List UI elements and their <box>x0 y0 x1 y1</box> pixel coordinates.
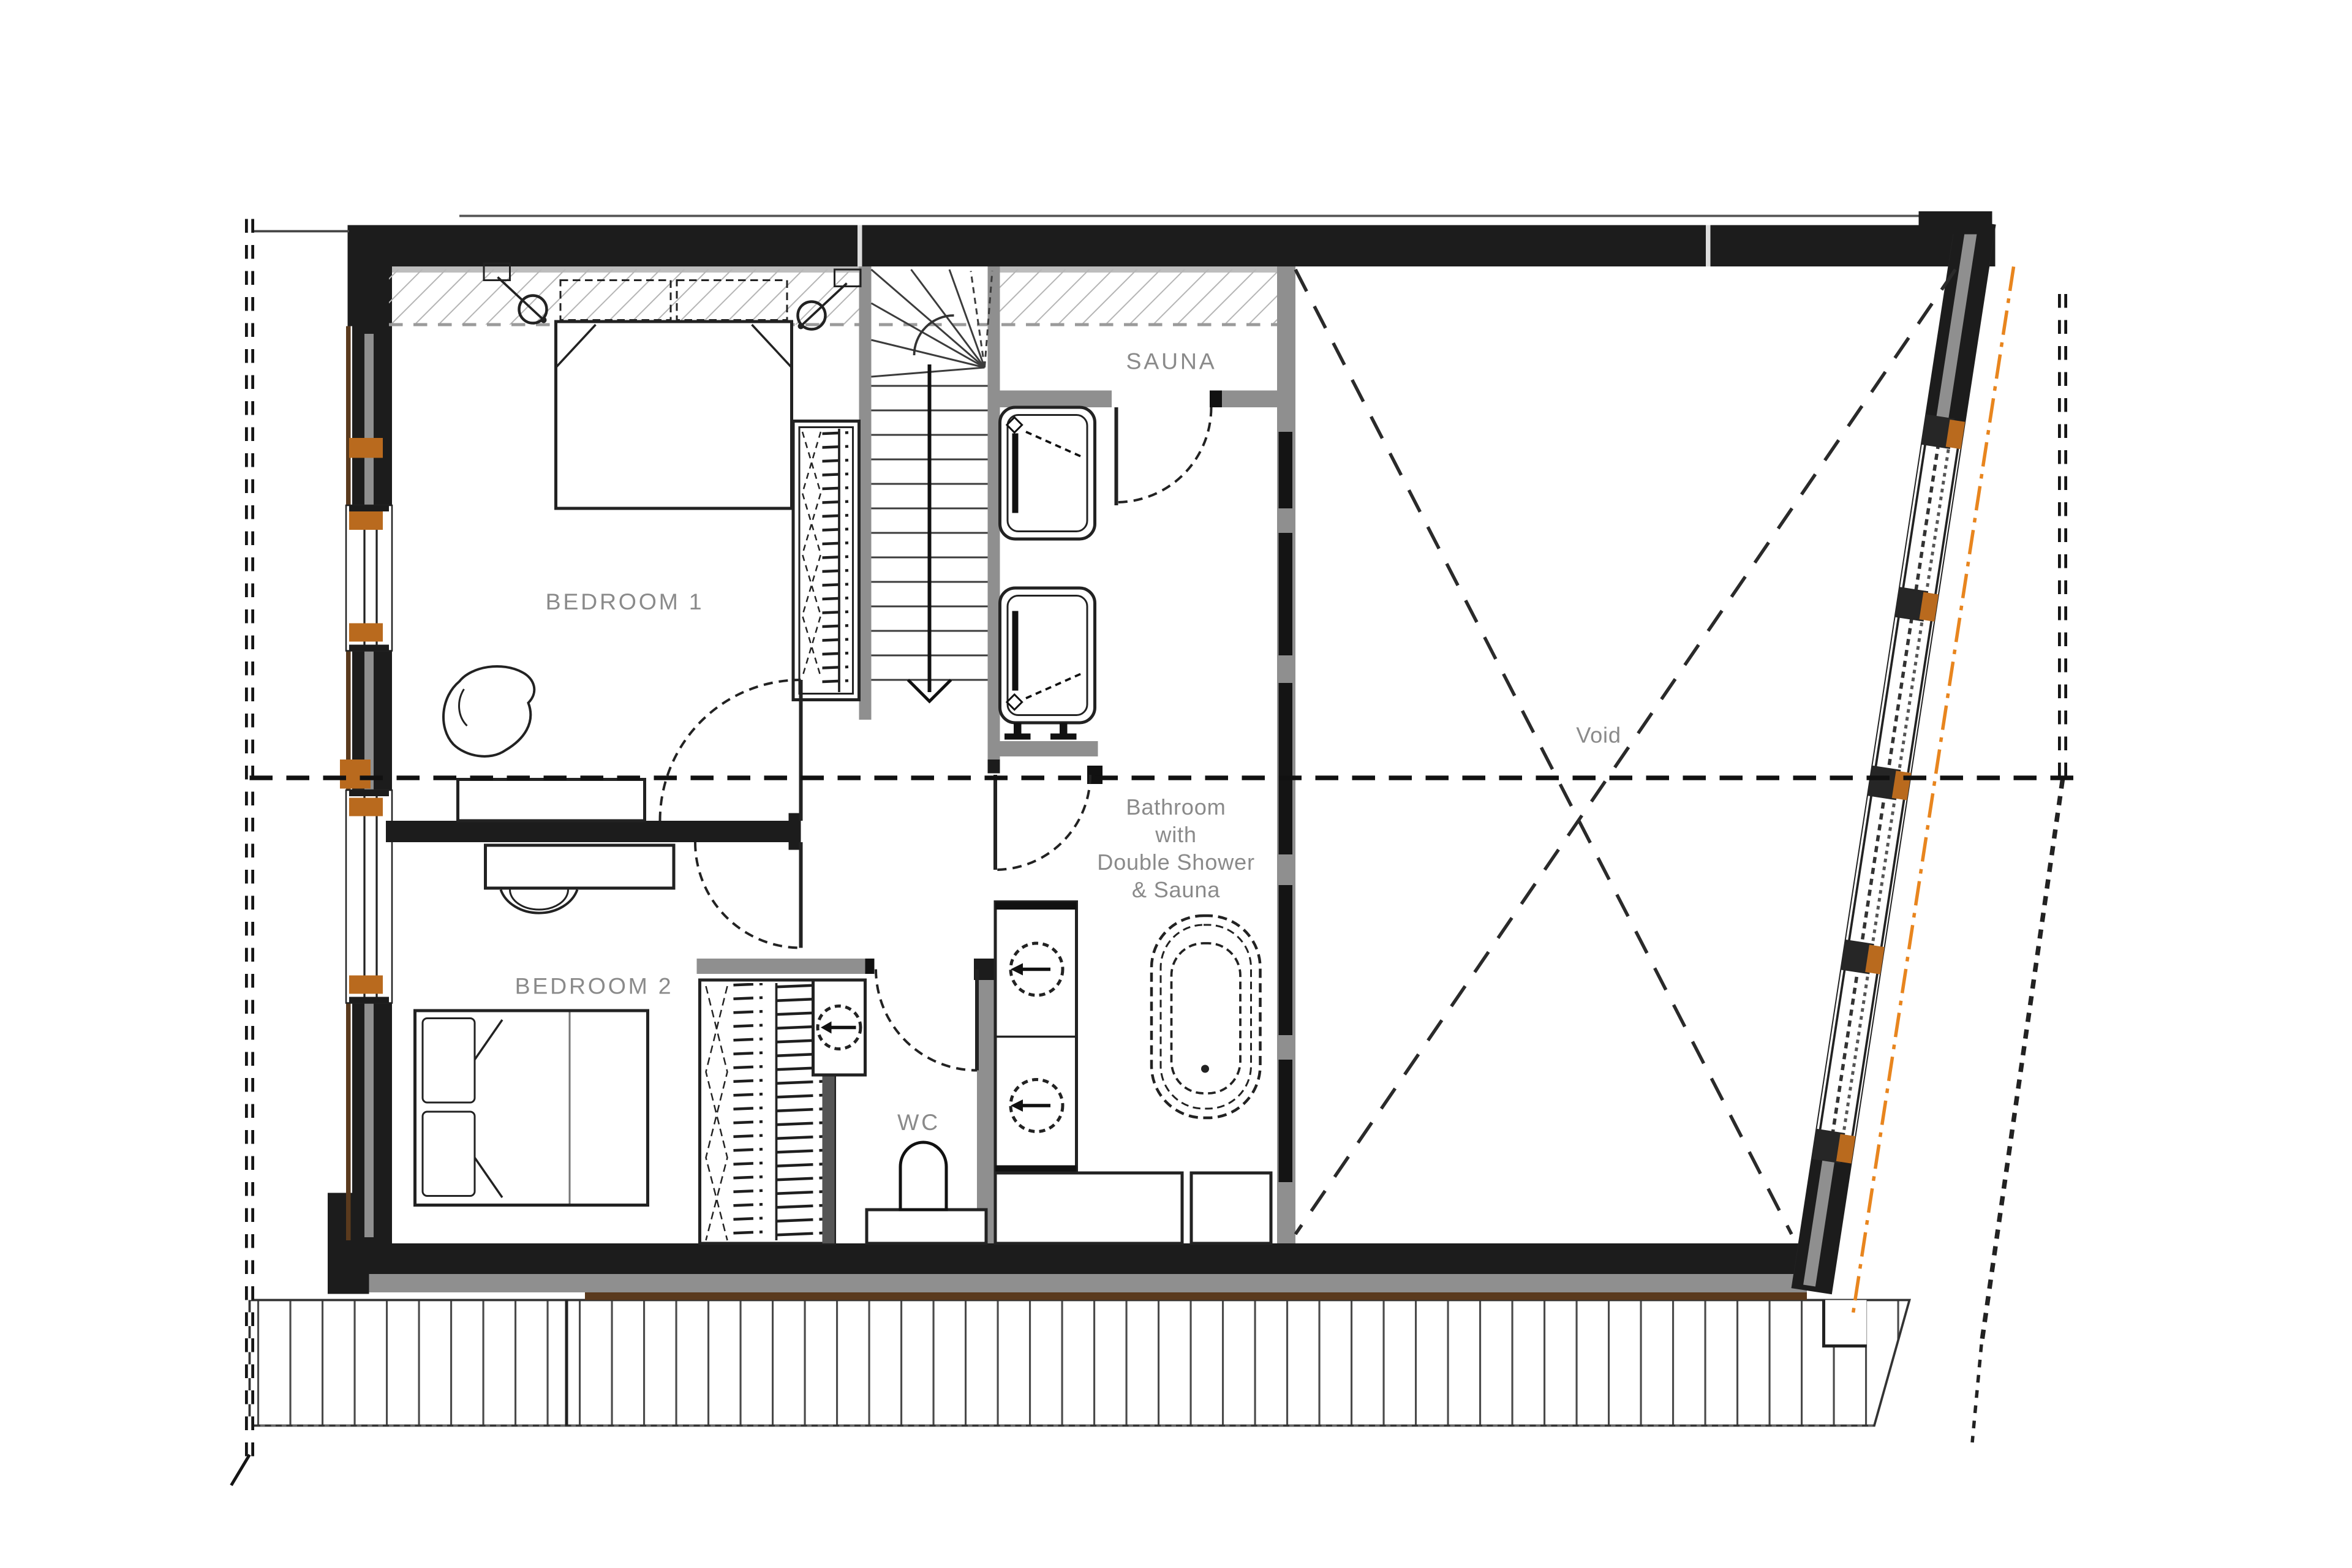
void-wall-glazing <box>1279 683 1293 854</box>
sauna-label: SAUNA <box>1126 349 1217 374</box>
svg-text:& Sauna: & Sauna <box>1132 877 1220 902</box>
double-vanity <box>995 902 1077 1174</box>
decking-area <box>250 1300 1910 1426</box>
page: SAUNA <box>0 0 2352 1568</box>
bathtub-icon <box>1151 916 1261 1118</box>
void-cross-line <box>1295 269 1792 1234</box>
bathroom-storage <box>1191 1173 1271 1243</box>
bathroom-label: Bathroom with Double Shower & Sauna <box>1097 794 1255 902</box>
void-label: Void <box>1576 723 1621 748</box>
sauna-door-swing-arc <box>1117 407 1212 502</box>
wc-door-stub <box>865 959 875 974</box>
boundary-line-east-lower <box>1981 780 2063 1345</box>
floor-plan-frame: SAUNA <box>0 0 2352 1568</box>
bottom-wall-timber <box>585 1292 1807 1300</box>
wc-basin-unit <box>813 980 865 1075</box>
bedroom2-label: BEDROOM 2 <box>515 973 674 999</box>
shower-screen-feet <box>1005 723 1077 740</box>
floor-plan-canvas: SAUNA <box>0 0 2352 1568</box>
sauna-door-stub <box>1210 391 1222 408</box>
partition-wall <box>386 821 801 842</box>
bedroom2-door-swing-arc <box>695 842 801 948</box>
bathroom-door-swing-arc <box>995 775 1090 870</box>
double-shower <box>994 407 1098 756</box>
boundary-end-tick <box>232 1455 250 1485</box>
toilet-icon <box>867 1142 986 1243</box>
wc-label: WC <box>897 1109 940 1135</box>
hatch-band-sauna <box>1000 269 1287 325</box>
desk <box>486 845 674 888</box>
bed-double-2 <box>415 1011 648 1205</box>
top-right-roof-cap <box>1919 211 1992 235</box>
left-wall-bracket-2 <box>340 759 371 789</box>
top-wall <box>388 225 1996 267</box>
svg-text:Double Shower: Double Shower <box>1097 850 1255 875</box>
wc-top-wall <box>697 959 875 974</box>
wardrobe-bedroom1 <box>793 421 859 700</box>
hatch-band-bedroom1 <box>389 269 859 325</box>
wc-door-swing-arc <box>876 970 977 1071</box>
bathroom: Bathroom with Double Shower & Sauna <box>995 766 1271 1243</box>
bedroom1-label: BEDROOM 1 <box>546 589 704 614</box>
left-window-2 <box>346 790 392 1003</box>
armchair <box>443 666 534 756</box>
dressing-table <box>458 780 645 821</box>
bedroom1-door-swing-arc <box>660 680 801 821</box>
svg-text:Bathroom: Bathroom <box>1126 794 1226 820</box>
stair-wall-right <box>988 266 1000 759</box>
void-wall-glazing <box>1279 533 1293 655</box>
decking-notch <box>1824 1300 1867 1346</box>
left-window-1 <box>346 505 392 651</box>
decking-terrace <box>250 1300 1910 1426</box>
wc-right-wall <box>977 959 995 1243</box>
stair-wall-left <box>859 266 872 720</box>
shower-tray-2 <box>1000 588 1095 723</box>
shower-end-wall <box>994 741 1098 756</box>
boundary-line-east-tail <box>1972 1344 1981 1442</box>
sloped-ceiling-zone <box>389 269 1286 325</box>
bathroom-bench <box>995 1173 1182 1243</box>
void-wall-glazing <box>1279 1060 1293 1182</box>
stair-wall-cap <box>988 759 1000 774</box>
left-wall-bracket-1 <box>349 438 383 458</box>
shower-tray-1 <box>1000 407 1095 539</box>
sauna-wall-right <box>1222 391 1277 408</box>
bathtub-drain <box>1201 1065 1209 1073</box>
staircase <box>859 266 1000 774</box>
top-wall-joint-2 <box>1706 225 1711 267</box>
bedroom2: BEDROOM 2 <box>415 845 674 1205</box>
void-wall-glazing <box>1279 885 1293 1035</box>
svg-text:with: with <box>1155 822 1196 847</box>
sauna-wall-left <box>1000 391 1112 408</box>
bottom-wall <box>343 1243 1831 1274</box>
top-wall-joint-1 <box>858 225 862 267</box>
glazed-east-wall <box>1789 219 2019 1321</box>
void-wall-glazing <box>1279 432 1293 508</box>
bottom-wall-liner <box>367 1274 1807 1292</box>
